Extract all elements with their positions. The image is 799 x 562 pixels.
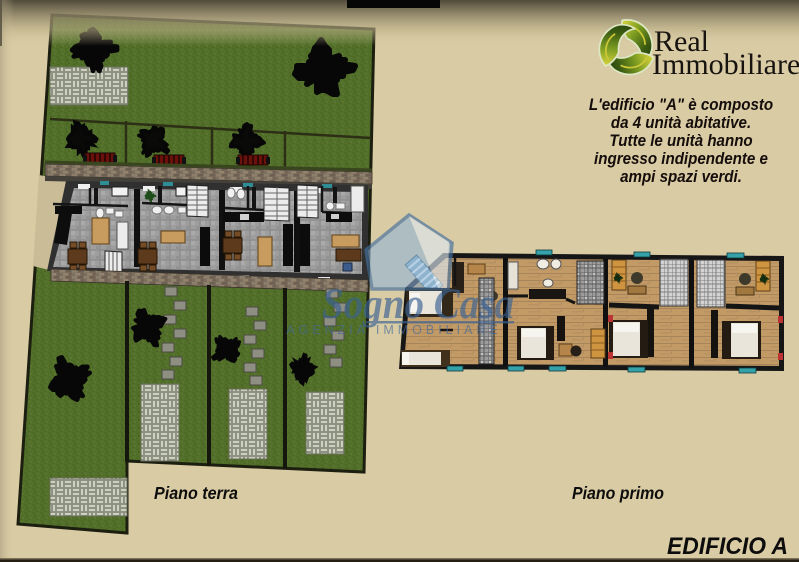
svg-text:Piano terra: Piano terra <box>154 483 238 503</box>
svg-text:ampi spazi verdi.: ampi spazi verdi. <box>620 167 742 186</box>
svg-text:L'edificio "A" è composto: L'edificio "A" è composto <box>589 95 773 114</box>
svg-text:Sogno Casa: Sogno Casa <box>322 281 514 328</box>
svg-text:Immobiliare: Immobiliare <box>652 48 799 81</box>
svg-text:da 4 unità abitative.: da 4 unità abitative. <box>611 113 751 132</box>
svg-text:ingresso indipendente e: ingresso indipendente e <box>594 149 768 168</box>
svg-text:EDIFICIO A: EDIFICIO A <box>667 533 788 560</box>
svg-text:AGENZIA IMMOBILIARE: AGENZIA IMMOBILIARE <box>286 323 502 337</box>
svg-text:Tutte le unità hanno: Tutte le unità hanno <box>609 131 752 150</box>
svg-text:Piano primo: Piano primo <box>572 483 664 503</box>
